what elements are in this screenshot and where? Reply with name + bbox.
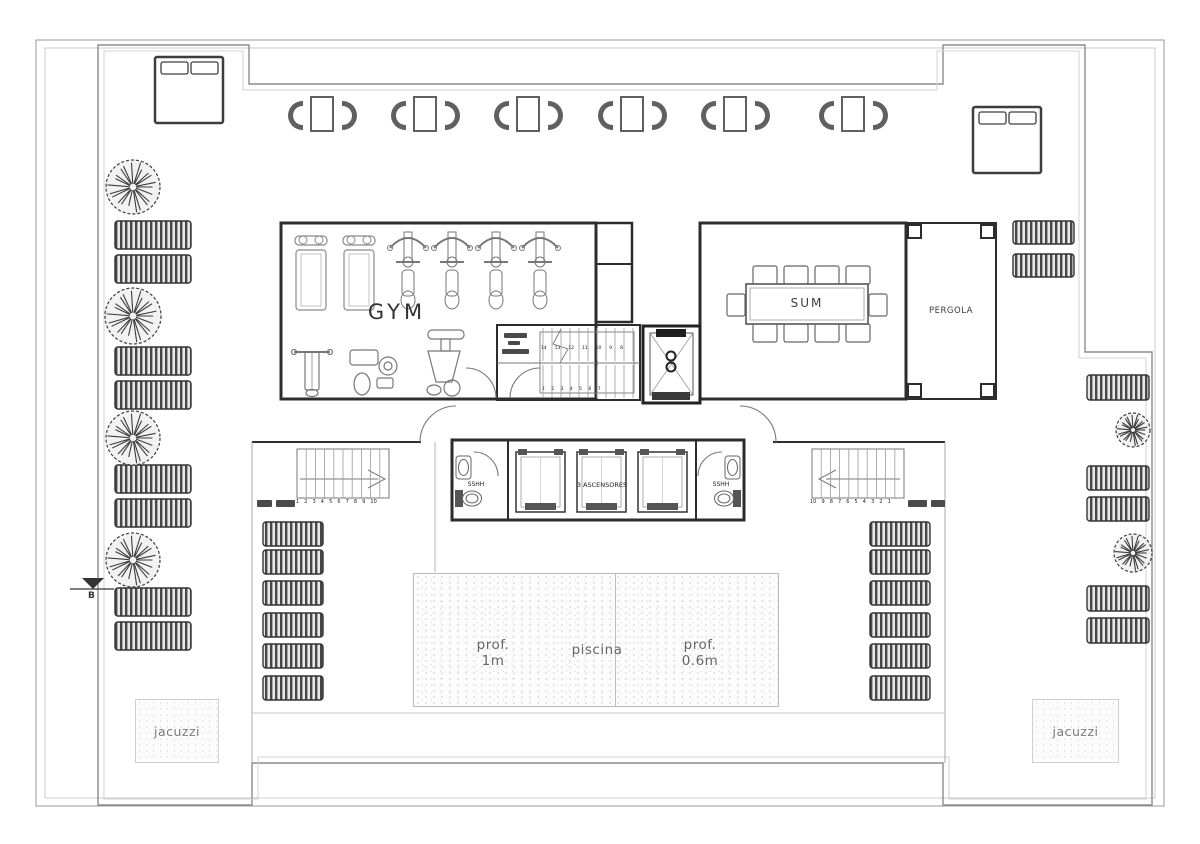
sun-lounger — [115, 499, 191, 527]
sshh-left-label: SSHH — [452, 482, 500, 489]
sum-chair — [784, 266, 808, 284]
daybed-top-left — [155, 57, 223, 123]
pool-divider — [615, 574, 616, 706]
sun-lounger — [1087, 375, 1149, 400]
tree-icon — [1116, 413, 1150, 447]
door-arc-gym-right — [510, 368, 540, 398]
toilet-right — [715, 491, 734, 506]
sun-lounger — [115, 465, 191, 493]
door-arc-hall-right — [740, 406, 776, 442]
sum-chair — [846, 266, 870, 284]
sun-lounger — [870, 676, 930, 700]
sum-chair — [869, 294, 887, 316]
sum-chair — [815, 266, 839, 284]
gym-equipment-bottom — [292, 330, 465, 397]
treadmill-icon — [295, 236, 327, 310]
sun-lounger — [1087, 466, 1149, 490]
pool-center-label: piscina — [552, 643, 642, 659]
door-arc-sshh-right — [698, 452, 722, 476]
toilet-left — [463, 491, 482, 506]
weight-machine-icon — [476, 232, 517, 309]
sun-lounger — [870, 644, 930, 668]
jacuzzi-right-label: jacuzzi — [1052, 724, 1098, 739]
bench-machine — [350, 350, 378, 365]
sun-lounger — [870, 550, 930, 574]
elevator-cab — [516, 449, 565, 512]
sun-lounger — [263, 550, 323, 574]
tree-icon — [106, 160, 160, 214]
sum-chair — [784, 324, 808, 342]
sun-lounger — [263, 522, 323, 546]
side-stairs — [297, 449, 904, 498]
sun-lounger — [263, 644, 323, 668]
sun-lounger — [115, 255, 191, 283]
weight-machine-icon — [520, 232, 561, 309]
sum-chair — [815, 324, 839, 342]
pool-depth-right-line1: prof. — [645, 638, 755, 654]
gym-equipment-top — [295, 232, 561, 310]
sum-chair — [753, 266, 777, 284]
tree-icon — [105, 288, 161, 344]
floorplan-sheet: jacuzzi jacuzzi GYM SUM PERGOLA 3 ASCENS… — [0, 0, 1200, 844]
sum-label: SUM — [746, 297, 868, 311]
elevator-shaft — [643, 326, 700, 403]
core-stair-upper-numbers: 14 13 12 11 10 9 8 — [541, 346, 623, 351]
sun-lounger — [870, 522, 930, 546]
sun-lounger — [263, 581, 323, 605]
daybeds — [155, 57, 1041, 173]
weight-machine-icon — [432, 232, 473, 309]
sun-lounger — [870, 581, 930, 605]
toilet-tank-left — [455, 490, 463, 507]
sun-lounger — [263, 676, 323, 700]
stair-core — [497, 329, 640, 393]
pool-depth-left-line2: 1m — [438, 654, 548, 670]
section-marker-icon — [70, 578, 114, 589]
sshh-right-label: SSHH — [698, 482, 744, 489]
daybed-top-right — [973, 107, 1041, 173]
section-marker-label: B — [88, 591, 95, 601]
sun-lounger — [263, 613, 323, 637]
side-stair-treads — [306, 449, 895, 498]
tree-icon — [106, 533, 160, 587]
core-stair-lower-numbers: 1 2 3 4 5 6 7 — [542, 387, 601, 392]
pool-depth-right-line2: 0.6m — [645, 654, 755, 670]
sun-lounger — [1013, 221, 1074, 244]
tree-icon — [1114, 534, 1152, 572]
sun-lounger — [115, 221, 191, 249]
sun-lounger — [115, 622, 191, 650]
pool-depth-left-label: prof. 1m — [438, 638, 548, 669]
stairs-right-numbers: 10 9 8 7 6 5 4 3 2 1 — [810, 500, 904, 506]
sum-walls — [700, 223, 906, 399]
tree-icon — [106, 411, 160, 465]
door-arc-gym-left — [466, 368, 496, 398]
sun-lounger — [1087, 618, 1149, 643]
shaft-rooms — [596, 223, 632, 322]
sun-lounger — [1087, 497, 1149, 521]
pool-depth-left-line1: prof. — [438, 638, 548, 654]
sun-lounger — [115, 381, 191, 409]
pool-depth-right-label: prof. 0.6m — [645, 638, 755, 669]
toilet-tank-right — [733, 490, 741, 507]
sun-lounger — [115, 588, 191, 616]
weight-machine-icon — [388, 232, 429, 309]
sun-lounger — [870, 613, 930, 637]
pergola-label: PERGOLA — [906, 307, 996, 317]
door-arc-sshh-left — [474, 452, 498, 476]
jacuzzi-right: jacuzzi — [1032, 699, 1119, 763]
elevator-cab — [638, 449, 687, 512]
door-arc-hall-left — [420, 406, 456, 442]
sun-lounger — [1087, 586, 1149, 611]
treadmill-icon — [343, 236, 375, 310]
cable-machine — [428, 330, 464, 339]
sum-chair — [846, 324, 870, 342]
jacuzzi-left: jacuzzi — [135, 699, 219, 763]
elevators-label: 3 ASCENSORES — [510, 482, 694, 489]
sum-chair — [753, 324, 777, 342]
sum-chair — [727, 294, 745, 316]
sun-lounger — [115, 347, 191, 375]
door-arcs — [420, 368, 776, 476]
stairs-left-numbers: 1 2 3 4 5 6 7 8 9 10 — [296, 500, 390, 506]
gym-label: GYM — [352, 300, 442, 324]
jacuzzi-left-label: jacuzzi — [154, 724, 200, 739]
sun-lounger — [1013, 254, 1074, 277]
